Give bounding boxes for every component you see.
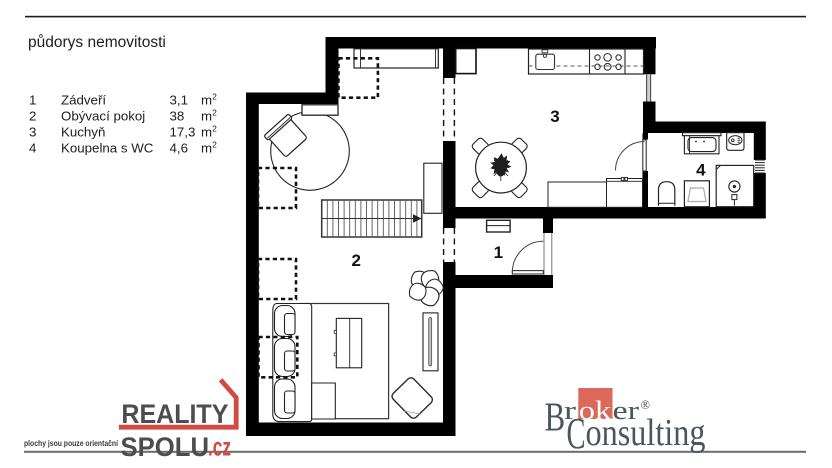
svg-text:onsulting: onsulting <box>586 412 706 454</box>
svg-text:2: 2 <box>29 109 36 124</box>
svg-text:3: 3 <box>29 125 36 140</box>
svg-text:C: C <box>567 409 586 458</box>
svg-text:1: 1 <box>494 243 503 262</box>
svg-text:půdorys nemovitosti: půdorys nemovitosti <box>28 34 166 51</box>
svg-text:1: 1 <box>29 93 36 108</box>
svg-text:Kuchyň: Kuchyň <box>61 125 105 140</box>
svg-text:®: ® <box>641 398 651 412</box>
svg-text:REALITY: REALITY <box>121 399 228 429</box>
svg-text:B: B <box>545 393 566 439</box>
svg-text:4: 4 <box>29 141 36 156</box>
svg-text:.cz: .cz <box>208 431 231 461</box>
svg-text:3,1: 3,1 <box>170 93 189 108</box>
svg-text:17,3: 17,3 <box>170 125 196 140</box>
svg-text:Koupelna s WC: Koupelna s WC <box>61 141 154 156</box>
svg-text:Zádveří: Zádveří <box>61 93 106 108</box>
svg-text:plochy jsou pouze orientační: plochy jsou pouze orientační <box>24 438 118 448</box>
svg-text:SPOLU: SPOLU <box>121 432 210 462</box>
svg-text:Obývací pokoj: Obývací pokoj <box>61 109 145 124</box>
svg-text:38: 38 <box>170 109 185 124</box>
svg-text:2: 2 <box>351 251 360 270</box>
svg-text:3: 3 <box>550 107 559 126</box>
svg-text:4,6: 4,6 <box>170 141 189 156</box>
svg-text:4: 4 <box>696 161 706 180</box>
